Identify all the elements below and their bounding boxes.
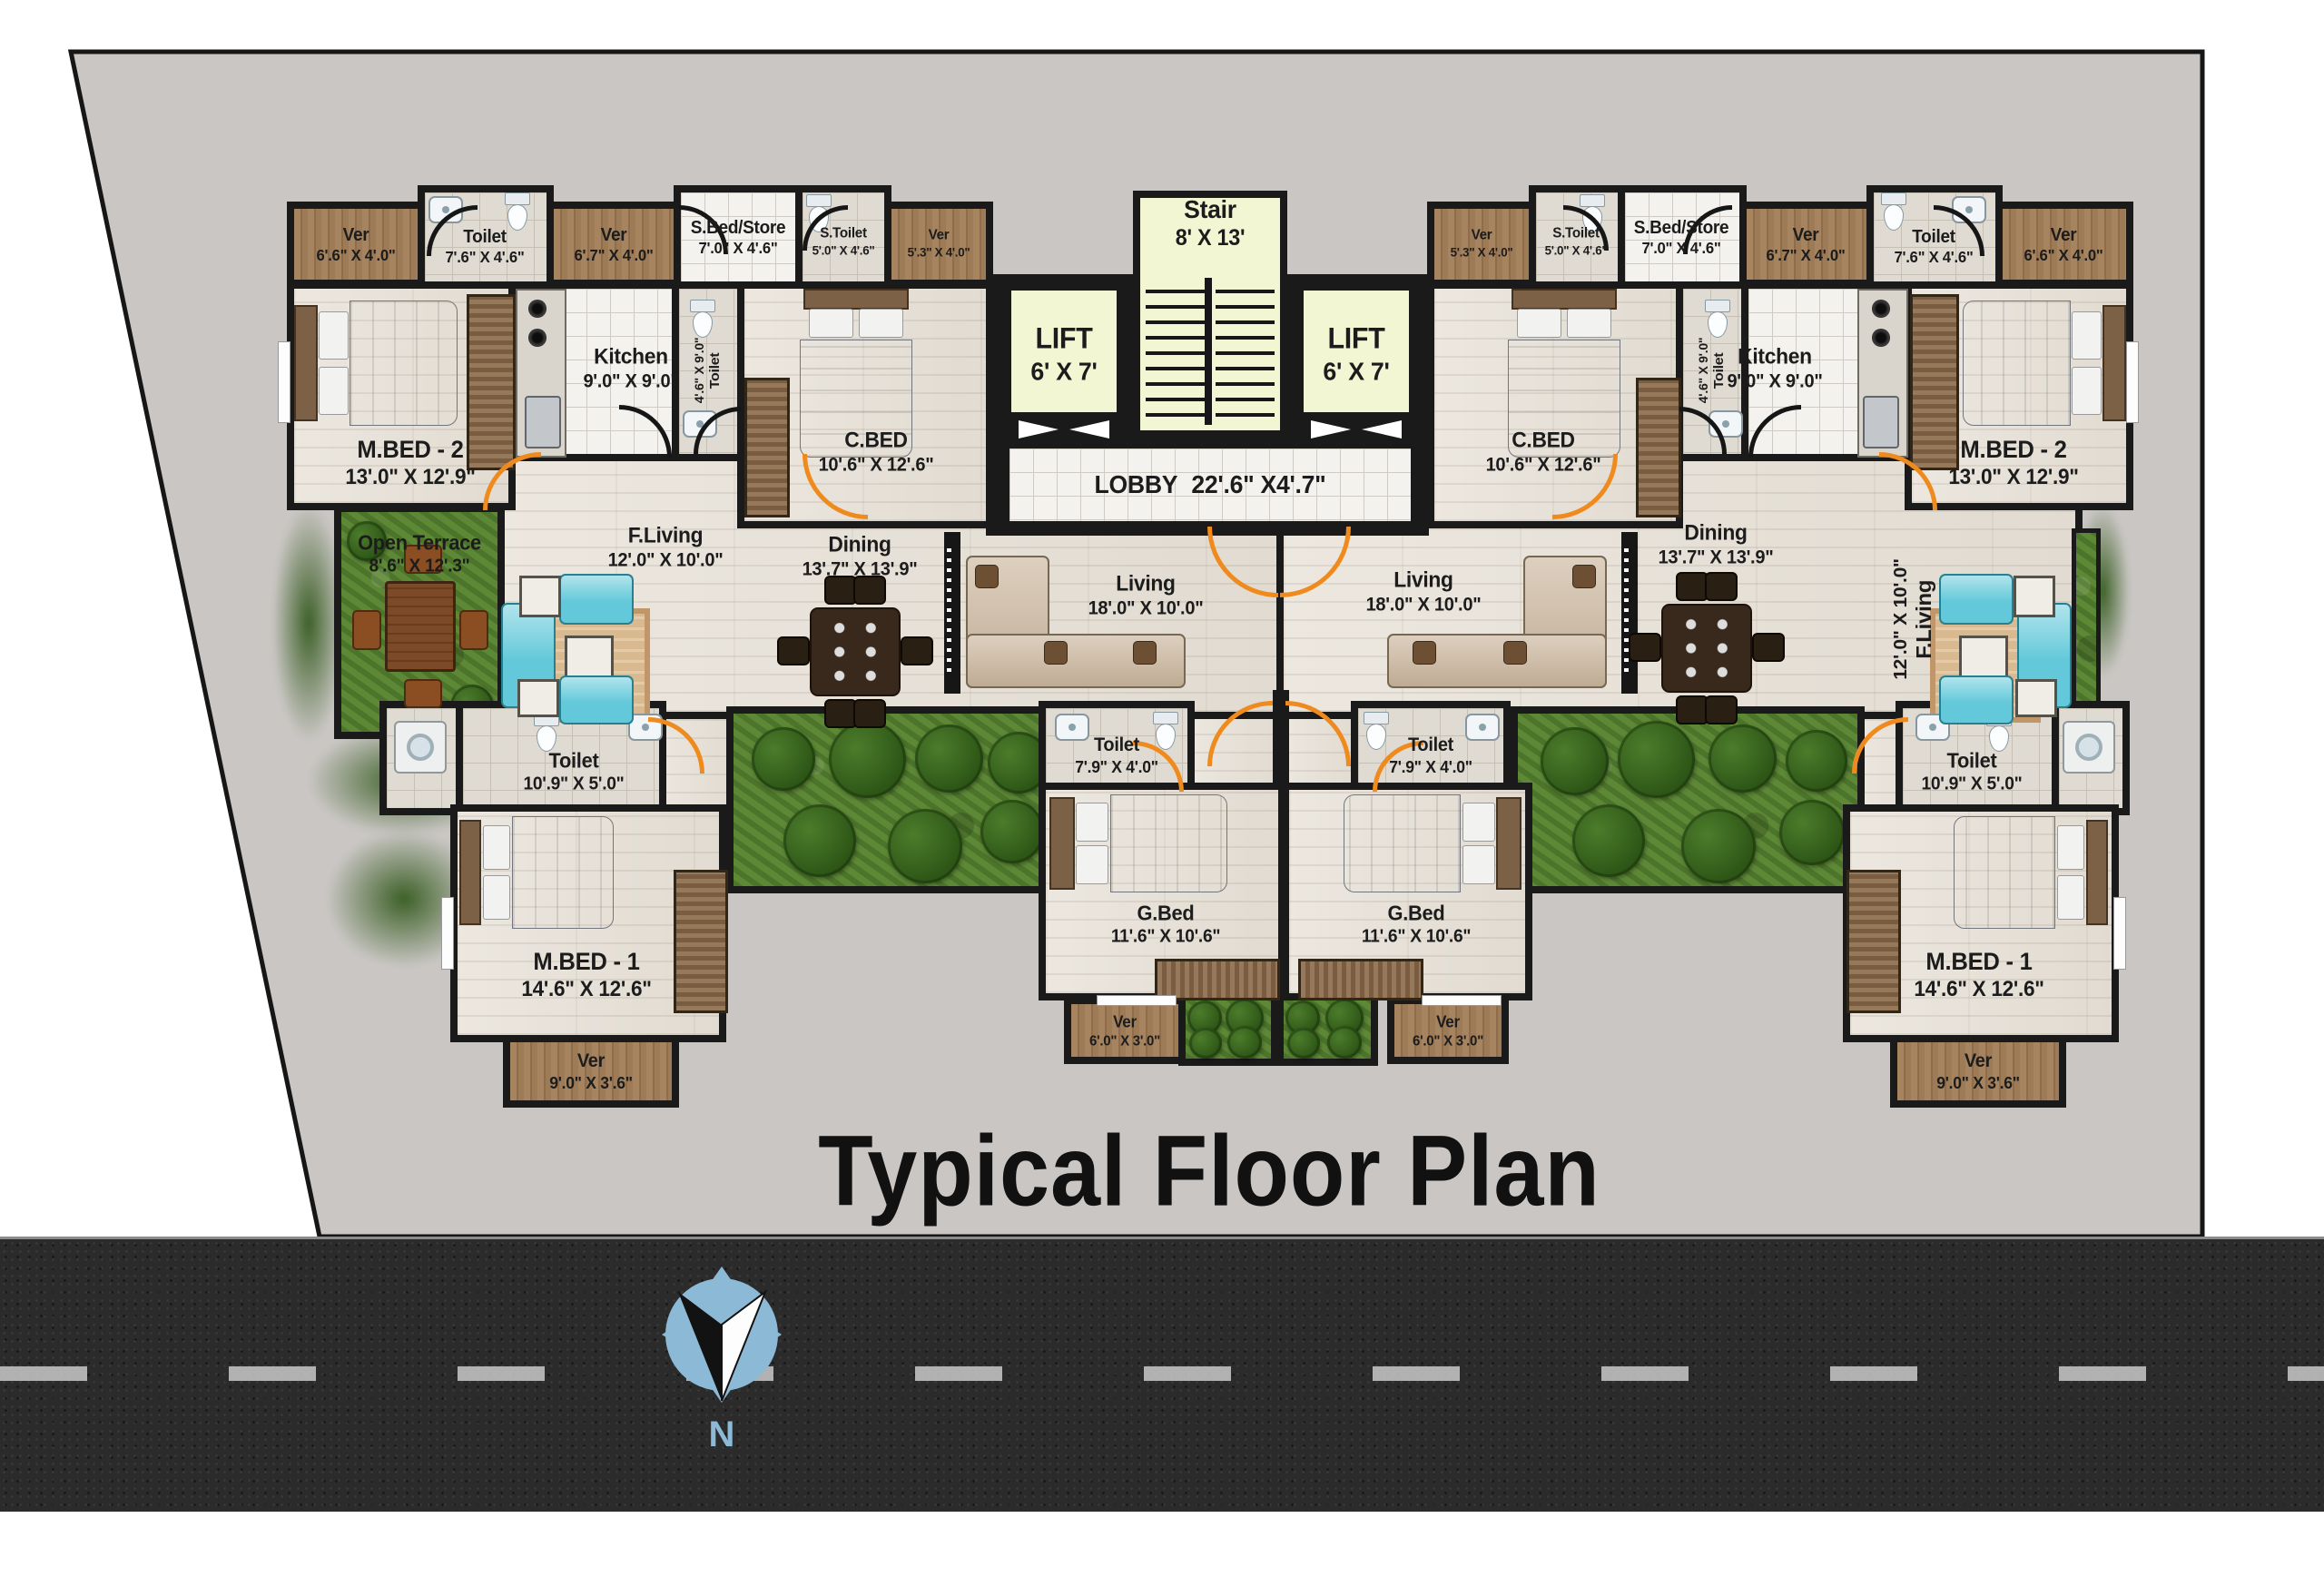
label-kitchen-left: Kitchen9'.0" X 9'.0": [583, 343, 678, 393]
tree-icon: [1779, 800, 1845, 865]
dining-table-icon: [777, 576, 933, 728]
label-toilet-top-left: Toilet7'.6" X 4'.6": [446, 226, 525, 268]
bush-icon: [1327, 1026, 1362, 1059]
tree-icon: [783, 804, 856, 877]
green-strip-right: [2072, 528, 2101, 715]
garden-right: [1511, 706, 1865, 893]
label-ver-top2-left: Ver6'.7" X 4'.0": [575, 224, 654, 266]
wc-icon: [1705, 300, 1730, 338]
label-f-living-left: F.Living12'.0" X 10'.0": [608, 522, 724, 572]
label-toilet-top-right: Toilet7'.6" X 4'.6": [1895, 226, 1974, 268]
green-patch-left: [1178, 991, 1278, 1066]
label-open-terrace: Open Terrace8'.6" X 12'.3": [358, 530, 481, 578]
label-stair: Stair8' X 13': [1176, 194, 1245, 252]
plant-icon: [517, 679, 559, 717]
label-living-right: Living18'.0" X 10'.0": [1366, 567, 1482, 616]
wc-icon: [690, 300, 715, 338]
label-ver-top1-left: Ver6'.6" X 4'.0": [317, 224, 396, 266]
tree-icon: [829, 721, 906, 798]
pillow-icon: [1133, 641, 1157, 665]
label-mbed2-right: M.BED - 213'.0" X 12'.9": [1948, 435, 2078, 491]
dining-table-icon: [1629, 572, 1785, 724]
label-toilet-low-left: Toilet10'.9" X 5'.0": [523, 748, 624, 796]
armchair-icon: [1939, 675, 2014, 724]
garden-left: [726, 706, 1066, 893]
label-cbed-left: C.BED10'.6" X 12'.6": [819, 427, 934, 477]
window-icon: [278, 341, 290, 423]
label-lobby: LOBBY22'.6" X4'.7": [1095, 469, 1326, 500]
bush-icon: [1227, 1026, 1262, 1059]
wc-icon: [1881, 192, 1906, 231]
label-toilet-mid-left: Toilet7'.9" X 4'.0": [1075, 734, 1158, 777]
label-kitchen-right: Kitchen9'.0" X 9'.0": [1727, 343, 1822, 393]
wardrobe-icon: [1636, 378, 1681, 517]
bed-icon: [1049, 793, 1227, 893]
label-ver-top2-right: Ver6'.7" X 4'.0": [1767, 224, 1846, 266]
bush-icon: [1287, 1028, 1320, 1059]
label-toilet-mid-right: Toilet7'.9" X 4'.0": [1389, 734, 1472, 777]
label-toilet-kitchen-left: Toilet4'.6" X 9'.0": [693, 338, 724, 404]
road-dash-line: [0, 1366, 2324, 1381]
window-icon: [441, 897, 454, 970]
compass-icon: N: [640, 1265, 803, 1457]
kitchen-sink-icon: [1863, 396, 1899, 448]
tree-icon: [980, 800, 1044, 863]
label-gbed-right: G.Bed11'.6" X 10'.6": [1362, 901, 1471, 949]
pillow-icon: [1572, 565, 1596, 588]
label-ver-top3-left: Ver5'.3" X 4'.0": [908, 227, 970, 261]
label-f-living-right: F.Living12'.0" X 10'.0": [1890, 558, 1937, 680]
label-ver-top1-right: Ver6'.6" X 4'.0": [2024, 224, 2103, 266]
label-sbed-store-left: S.Bed/Store7'.0" X 4'.6": [691, 217, 786, 259]
wardrobe-icon: [744, 378, 790, 517]
label-ver-bottom-left: Ver9'.0" X 3'.6": [549, 1050, 633, 1093]
tree-icon: [1541, 727, 1609, 795]
wc-icon: [534, 714, 559, 752]
green-patch-right: [1276, 991, 1378, 1066]
tree-icon: [752, 727, 815, 791]
washer-icon: [394, 721, 447, 774]
label-ver-small-left: Ver6'.0" X 3'.0": [1089, 1012, 1160, 1050]
bed-icon: [1344, 793, 1521, 893]
dresser-icon: [1298, 959, 1423, 1000]
label-gbed-left: G.Bed11'.6" X 10'.6": [1111, 901, 1220, 949]
bed-icon: [459, 815, 614, 930]
wc-icon: [505, 192, 530, 231]
window-icon: [1422, 995, 1502, 1006]
window-icon: [2113, 897, 2126, 970]
tree-icon: [1618, 721, 1695, 798]
bed-icon: [1963, 300, 2126, 427]
stove-burner-icon: [528, 300, 547, 318]
label-toilet-low-right: Toilet10'.9" X 5'.0": [1921, 748, 2022, 796]
compass-north-label: N: [709, 1414, 735, 1454]
label-s-toilet-left: S.Toilet5'.0" X 4'.6": [812, 225, 875, 259]
plant-icon: [2014, 576, 2055, 617]
label-dining-left: Dining13'.7" X 13'.9": [803, 531, 918, 581]
label-lift-right: LIFT6' X 7': [1323, 320, 1389, 387]
label-cbed-right: C.BED10'.6" X 12'.6": [1486, 427, 1601, 477]
tree-icon: [1681, 809, 1756, 883]
bush-icon: [1189, 1028, 1222, 1059]
lift-door-icon: [1019, 419, 1109, 439]
plant-icon: [2015, 679, 2057, 717]
lift-door-icon: [1311, 419, 1402, 439]
window-icon: [1097, 995, 1177, 1006]
page-title: Typical Floor Plan: [818, 1114, 1600, 1229]
stair-steps-icon: [1146, 278, 1275, 425]
road: N: [0, 1237, 2324, 1512]
washer-icon: [2063, 721, 2115, 774]
stove-burner-icon: [1872, 329, 1890, 347]
stove-burner-icon: [1872, 300, 1890, 318]
label-ver-top3-right: Ver5'.3" X 4'.0": [1451, 227, 1513, 261]
armchair-icon: [559, 675, 634, 724]
bed-icon: [1954, 815, 2108, 930]
label-ver-small-right: Ver6'.0" X 3'.0": [1413, 1012, 1483, 1050]
label-s-toilet-right: S.Toilet5'.0" X 4'.6": [1545, 225, 1608, 259]
pillow-icon: [975, 565, 999, 588]
label-mbed2-left: M.BED - 213'.0" X 12'.9": [345, 435, 475, 491]
plant-icon: [519, 576, 561, 617]
label-mbed1-right: M.BED - 114'.6" X 12'.6": [1914, 947, 2043, 1003]
tree-icon: [1786, 730, 1847, 792]
label-ver-bottom-right: Ver9'.0" X 3'.6": [1936, 1050, 2020, 1093]
tv-unit-icon: [944, 532, 960, 694]
label-toilet-kitchen-right: Toilet4'.6" X 9'.0": [1697, 338, 1728, 404]
window-icon: [2126, 341, 2139, 423]
floor-plan-canvas: Stair8' X 13' LIFT6' X 7' LIFT6' X 7' LO…: [0, 0, 2324, 1577]
kitchen-sink-icon: [525, 396, 561, 448]
tree-icon: [1709, 724, 1777, 793]
tree-icon: [1572, 804, 1645, 877]
pillow-icon: [1044, 641, 1068, 665]
pillow-icon: [1413, 641, 1436, 665]
armchair-icon: [559, 574, 634, 625]
pillow-icon: [1503, 641, 1527, 665]
label-mbed1-left: M.BED - 114'.6" X 12'.6": [521, 947, 651, 1003]
wc-icon: [1364, 712, 1389, 750]
tree-icon: [888, 809, 962, 883]
tree-icon: [915, 724, 983, 793]
wardrobe-icon: [674, 870, 728, 1013]
stove-burner-icon: [528, 329, 547, 347]
label-lift-left: LIFT6' X 7': [1030, 320, 1097, 387]
label-sbed-store-right: S.Bed/Store7'.0" X 4'.6": [1634, 217, 1729, 259]
armchair-icon: [1939, 574, 2014, 625]
label-dining-right: Dining13'.7" X 13'.9": [1659, 519, 1774, 569]
bed-icon: [294, 300, 458, 427]
label-living-left: Living18'.0" X 10'.0": [1088, 570, 1204, 620]
wardrobe-icon: [1846, 870, 1901, 1013]
